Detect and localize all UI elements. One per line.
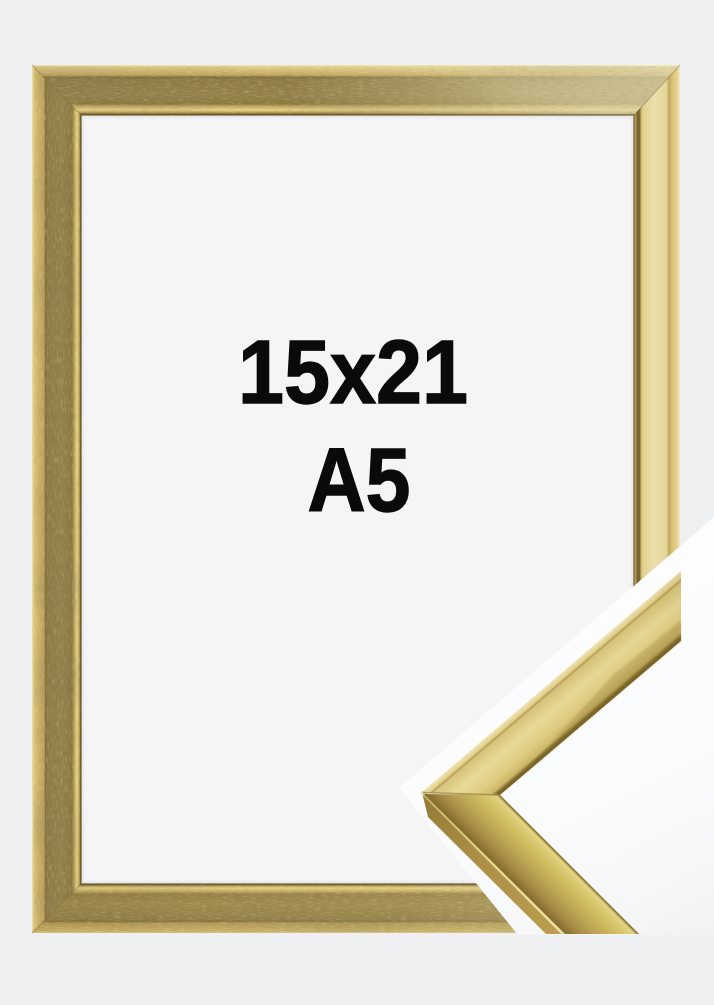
svg-text:A5: A5 — [308, 431, 411, 531]
svg-text:15x21: 15x21 — [238, 323, 468, 423]
